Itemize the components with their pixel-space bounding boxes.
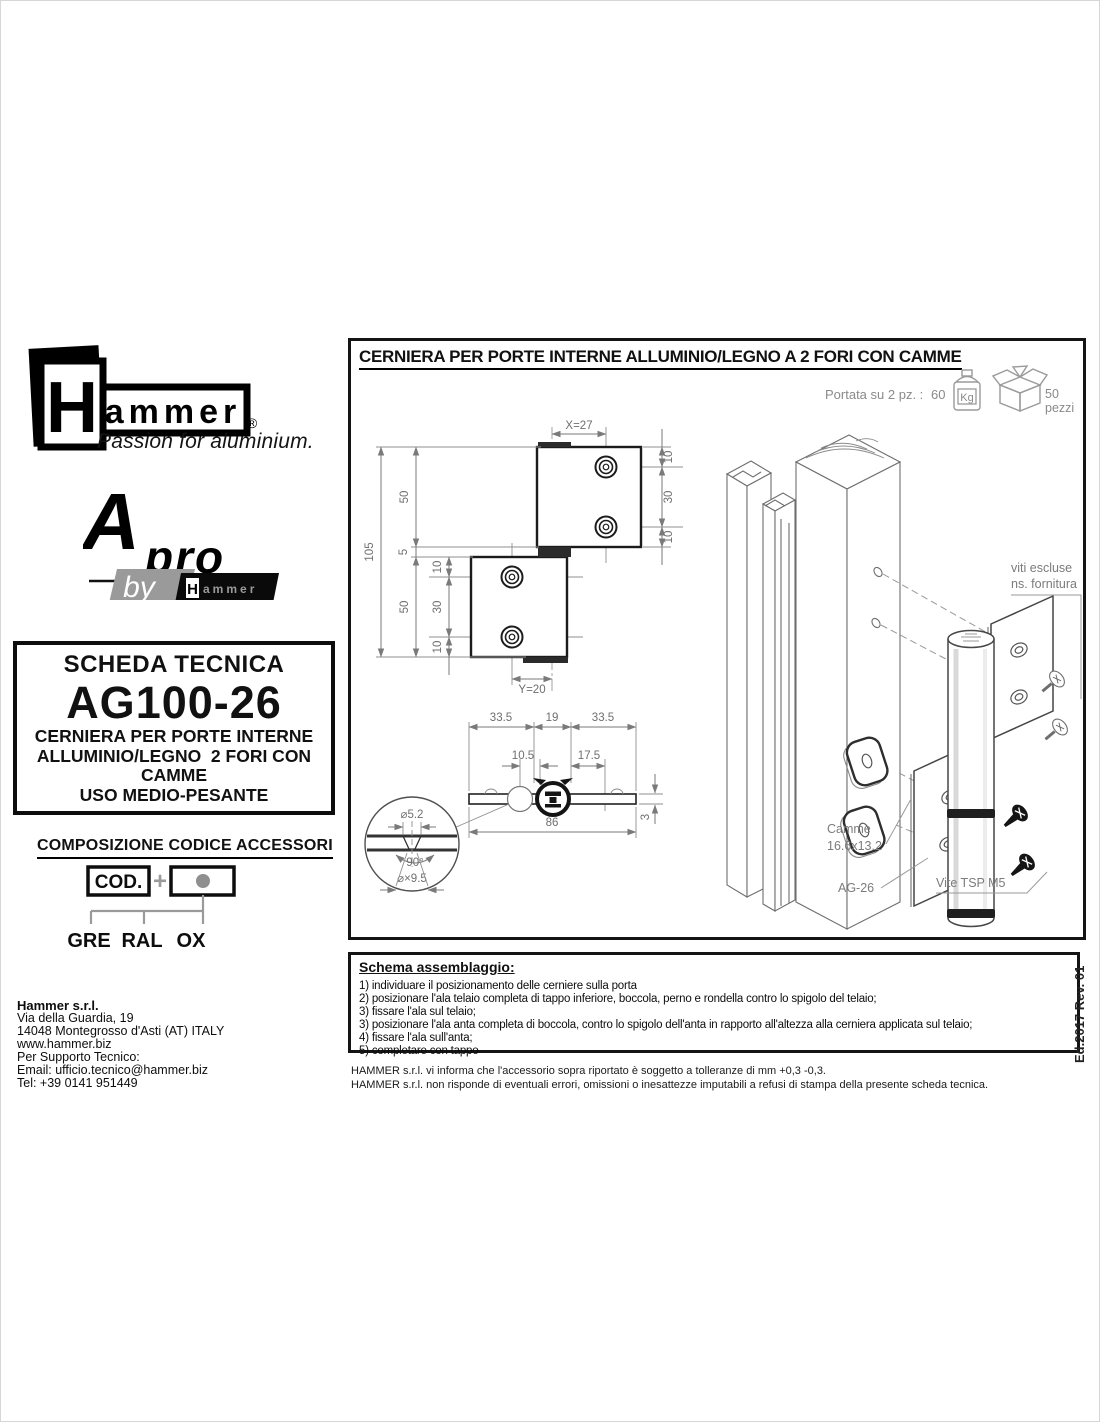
bushing-circle — [508, 787, 533, 812]
knuckle-top — [538, 442, 571, 447]
dim-hole-dia: ⌀5.2 — [401, 809, 424, 821]
wood-door-section — [796, 435, 900, 929]
hammer-h: H — [46, 368, 98, 448]
accessories-code-diagram: COD. + GRE RAL OX — [41, 863, 311, 958]
dim-off1: 10.5 — [512, 750, 534, 762]
dim-wside: 33.5 — [490, 712, 512, 724]
dim-angle: 90° — [406, 857, 423, 869]
dim-csk-dia: ⌀×9.5 — [397, 873, 427, 885]
dim-edge: 10 — [663, 531, 675, 544]
front-view-drawing: X=27 10 30 10 105 — [364, 420, 683, 696]
dim-edge: 10 — [432, 561, 444, 574]
assembly-heading: Schema assemblaggio: — [359, 959, 1069, 975]
finish-option-gre: GRE — [67, 930, 110, 952]
finish-option-ox: OX — [177, 930, 207, 952]
label-screws-excluded: viti escluse — [1011, 561, 1072, 575]
dim-total-width: 86 — [546, 817, 559, 829]
footnote-tolerances: HAMMER s.r.l. vi informa che l'accessori… — [351, 1064, 1081, 1078]
company-info: Hammer s.r.l. Via della Guardia, 19 1404… — [17, 999, 224, 1090]
finish-option-ral: RAL — [121, 930, 162, 952]
description-line: USO MEDIO-PESANTE — [17, 786, 331, 806]
apro-by: by — [123, 571, 157, 600]
footnote-disclaimer: HAMMER s.r.l. non risponde di eventuali … — [351, 1078, 1081, 1092]
assembly-step: 3) fissare l'ala sul telaio; — [359, 1006, 1069, 1019]
assembly-step: 4) fissare l'ala sull'anta; — [359, 1032, 1069, 1045]
technical-drawing: X=27 10 30 10 105 — [351, 341, 1083, 937]
dim-off2: 17.5 — [578, 750, 600, 762]
dim-thickness: 3 — [640, 814, 652, 820]
label-screw-type: Vite TSP M5 — [936, 876, 1006, 890]
assembly-step: 1) individuare il posizionamento delle c… — [359, 980, 1069, 993]
datasheet-heading: SCHEDA TECNICA — [17, 651, 331, 679]
section-view-drawing: 33.5 19 33.5 10.5 17.5 — [365, 712, 663, 891]
knuckle-middle — [538, 547, 571, 557]
page: ammer H ® Passion for aluminium. A pro b… — [0, 0, 1100, 1422]
supply-screw — [1006, 851, 1039, 883]
plus-sign: + — [153, 868, 167, 895]
dim-leaf: 50 — [399, 601, 411, 614]
finish-dot — [196, 874, 210, 888]
barrel-ring — [947, 909, 995, 918]
barrel-ring — [947, 809, 995, 818]
apro-hammer-rest: ammer — [203, 582, 257, 596]
hinge-leaf-frame — [537, 447, 641, 547]
label-cam: Camme — [827, 822, 871, 836]
assembly-step: 3) posizionare l'ala anta completa di bo… — [359, 1019, 1069, 1032]
label-hinge-code: AG-26 — [838, 881, 874, 895]
apro-hammer-h: H — [187, 581, 198, 598]
dim-total-height: 105 — [364, 542, 376, 561]
product-code: AG100-26 — [17, 679, 331, 727]
supply-screw — [999, 802, 1032, 834]
frame-leaf-plate — [988, 596, 1053, 741]
drawing-panel: CERNIERA PER PORTE INTERNE ALLUMINIO/LEG… — [348, 338, 1086, 940]
hinge-knuckle-section — [533, 778, 573, 815]
label-screws-excluded-2: ns. fornitura — [1011, 577, 1077, 591]
apro-logo: A pro by H ammer — [83, 475, 283, 600]
cod-label: COD. — [95, 872, 143, 893]
edition-revision: Ed.2017 Rev. 01 — [1072, 943, 1087, 1063]
company-phone: Tel: +39 0141 951449 — [17, 1077, 224, 1090]
dim-edge: 10 — [663, 451, 675, 464]
apro-a: A — [83, 477, 140, 566]
dim-y20: Y=20 — [518, 684, 545, 696]
dim-edge: 10 — [432, 641, 444, 654]
dim-pitch: 30 — [663, 491, 675, 504]
hammer-wordmark: ammer — [105, 393, 242, 431]
datasheet-box: SCHEDA TECNICA AG100-26 CERNIERA PER POR… — [13, 641, 335, 815]
dim-gap: 5 — [398, 549, 410, 555]
dim-pitch: 30 — [432, 601, 444, 614]
countersink-detail: ⌀5.2 90° ⌀×9.5 — [365, 797, 509, 891]
assembly-steps: 1) individuare il posizionamento delle c… — [359, 980, 1069, 1058]
dim-wside: 33.5 — [592, 712, 614, 724]
product-description: CERNIERA PER PORTE INTERNE ALLUMINIO/LEG… — [17, 727, 331, 805]
assembly-step: 2) posizionare l'ala telaio completa di … — [359, 993, 1069, 1006]
aluminium-profile — [727, 461, 795, 911]
brand-tagline: Passion for aluminium. — [97, 430, 314, 454]
exploded-view-drawing: viti escluse ns. fornitura Camme 16.6x13… — [727, 435, 1081, 929]
assembly-step: 5) completare con tappo — [359, 1045, 1069, 1058]
registered-mark: ® — [247, 415, 258, 431]
dim-x27: X=27 — [565, 420, 592, 432]
accessories-heading: COMPOSIZIONE CODICE ACCESSORI — [37, 837, 333, 859]
description-line: ALLUMINIO/LEGNO 2 FORI CON — [17, 747, 331, 767]
assembly-box: Schema assemblaggio: 1) individuare il p… — [348, 952, 1080, 1053]
description-line: CAMME — [17, 766, 331, 786]
hinge-leaf-door — [471, 557, 567, 657]
description-line: CERNIERA PER PORTE INTERNE — [17, 727, 331, 747]
dim-leaf: 50 — [399, 491, 411, 504]
label-cam-size: 16.6x13.2 — [827, 839, 882, 853]
knuckle-bottom — [523, 657, 568, 663]
excluded-screw — [1040, 716, 1071, 746]
footnotes: HAMMER s.r.l. vi informa che l'accessori… — [351, 1064, 1081, 1092]
dim-wmid: 19 — [546, 712, 559, 724]
code-connector-lines — [91, 895, 203, 924]
